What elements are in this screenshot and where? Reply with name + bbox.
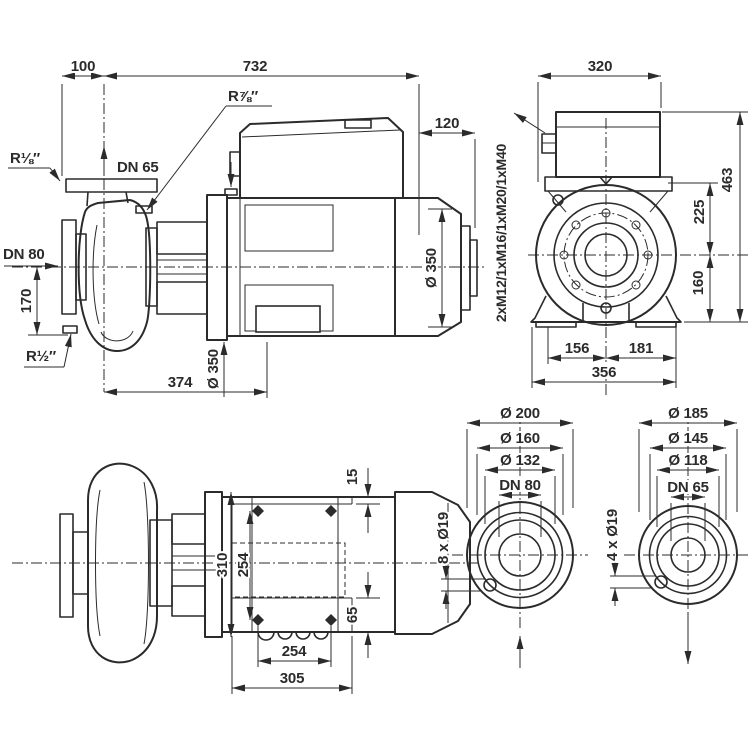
dim-dia350-motor: Ø 350 xyxy=(423,209,452,327)
dim-170: 170 xyxy=(18,267,68,335)
plan-view: 15 310 254 65 254 305 xyxy=(12,464,482,694)
dim-label-dia350-motor: Ø 350 xyxy=(423,248,440,288)
dim-label-dn80: DN 80 xyxy=(3,246,45,263)
volute-casing xyxy=(79,200,152,351)
motor-foot xyxy=(256,306,320,332)
dim-label-dia160: Ø 160 xyxy=(500,430,540,447)
bearing-bracket xyxy=(146,222,207,314)
dim-label-dia350-flange: Ø 350 xyxy=(205,349,222,389)
pump-dimensional-drawing: 100 732 120 R⅞″ R⅛″ DN 65 DN 80 xyxy=(0,0,750,750)
dim-label-r78: R⅞″ xyxy=(228,88,258,105)
dim-label-dia132: Ø 132 xyxy=(500,452,540,469)
dim-100: 100 xyxy=(62,58,104,176)
dim-label-120: 120 xyxy=(435,115,459,132)
dim-label-dia118: Ø 118 xyxy=(668,452,707,469)
dim-label-65: 65 xyxy=(344,607,361,623)
dim-374: 374 xyxy=(104,342,267,398)
dim-label-170: 170 xyxy=(18,289,35,313)
dim-label-160: 160 xyxy=(690,271,707,295)
dim-label-320: 320 xyxy=(588,58,612,75)
dim-label-156: 156 xyxy=(565,340,589,357)
dim-156: 156 xyxy=(548,327,606,364)
flange-view-dn80: Ø 200 Ø 160 Ø 132 DN 80 8 x Ø19 xyxy=(435,405,588,668)
dim-label-732: 732 xyxy=(243,58,267,75)
dim-label-356: 356 xyxy=(592,364,616,381)
dim-label-r12: R½″ xyxy=(26,348,56,365)
dim-label-254v: 254 xyxy=(235,552,252,577)
suction-flange xyxy=(62,220,86,333)
dim-label-254h: 254 xyxy=(282,643,307,660)
callout-glands: 2xM12/1xM16/1xM20/1xM40 xyxy=(493,113,545,322)
dim-label-181: 181 xyxy=(629,340,653,357)
dim-label-dia185: Ø 185 xyxy=(668,405,708,422)
dim-181: 181 xyxy=(606,327,676,388)
flange-view-dn65: Ø 185 Ø 145 Ø 118 DN 65 4 x Ø19 xyxy=(604,405,748,664)
dim-label-glands: 2xM12/1xM16/1xM20/1xM40 xyxy=(493,143,509,322)
front-view: 2xM12/1xM16/1xM20/1xM40 320 463 225 160 … xyxy=(493,58,750,395)
dim-label-100: 100 xyxy=(71,58,95,75)
dim-label-dn80-bore: DN 80 xyxy=(499,477,541,494)
foot-slots xyxy=(258,632,328,640)
dim-label-225: 225 xyxy=(691,200,708,224)
dim-dia350-flange: Ø 350 xyxy=(205,342,224,397)
motor-cover-plate xyxy=(545,177,672,212)
callout-r78: R⅞″ xyxy=(147,88,272,210)
callout-r12: R½″ xyxy=(24,334,71,367)
suction-flange-plan xyxy=(60,514,88,617)
dim-label-15: 15 xyxy=(344,469,361,485)
technical-drawing-canvas: 100 732 120 R⅞″ R⅛″ DN 65 DN 80 xyxy=(0,0,750,750)
dim-label-463: 463 xyxy=(719,168,736,192)
callout-dn80: DN 80 xyxy=(3,246,58,266)
terminal-box-front xyxy=(542,112,660,177)
dim-160: 160 xyxy=(690,255,710,322)
callout-r18: R⅛″ xyxy=(8,150,60,181)
dim-label-4xd19: 4 x Ø19 xyxy=(604,509,621,561)
bearing-bracket-plan xyxy=(150,514,222,616)
dim-120: 120 xyxy=(419,115,475,228)
dim-15: 15 xyxy=(344,468,380,533)
dim-label-374: 374 xyxy=(168,374,193,391)
dim-label-dn65-bore: DN 65 xyxy=(667,479,709,496)
dim-254v: 254 xyxy=(235,511,252,620)
callout-4xd19: 4 x Ø19 xyxy=(604,509,656,606)
dim-65: 65 xyxy=(344,572,380,658)
foot-bolt-symbols xyxy=(252,505,337,626)
dim-label-305: 305 xyxy=(280,670,304,687)
dim-label-dia145: Ø 145 xyxy=(668,430,708,447)
dim-label-r18: R⅛″ xyxy=(10,150,40,167)
dim-label-8xd19: 8 x Ø19 xyxy=(435,512,452,564)
dim-label-310: 310 xyxy=(214,553,231,577)
dim-label-dn65: DN 65 xyxy=(117,159,159,176)
dim-label-dia200: Ø 200 xyxy=(500,405,540,422)
terminal-box xyxy=(230,118,403,198)
side-view: 100 732 120 R⅞″ R⅛″ DN 65 DN 80 xyxy=(3,58,484,398)
